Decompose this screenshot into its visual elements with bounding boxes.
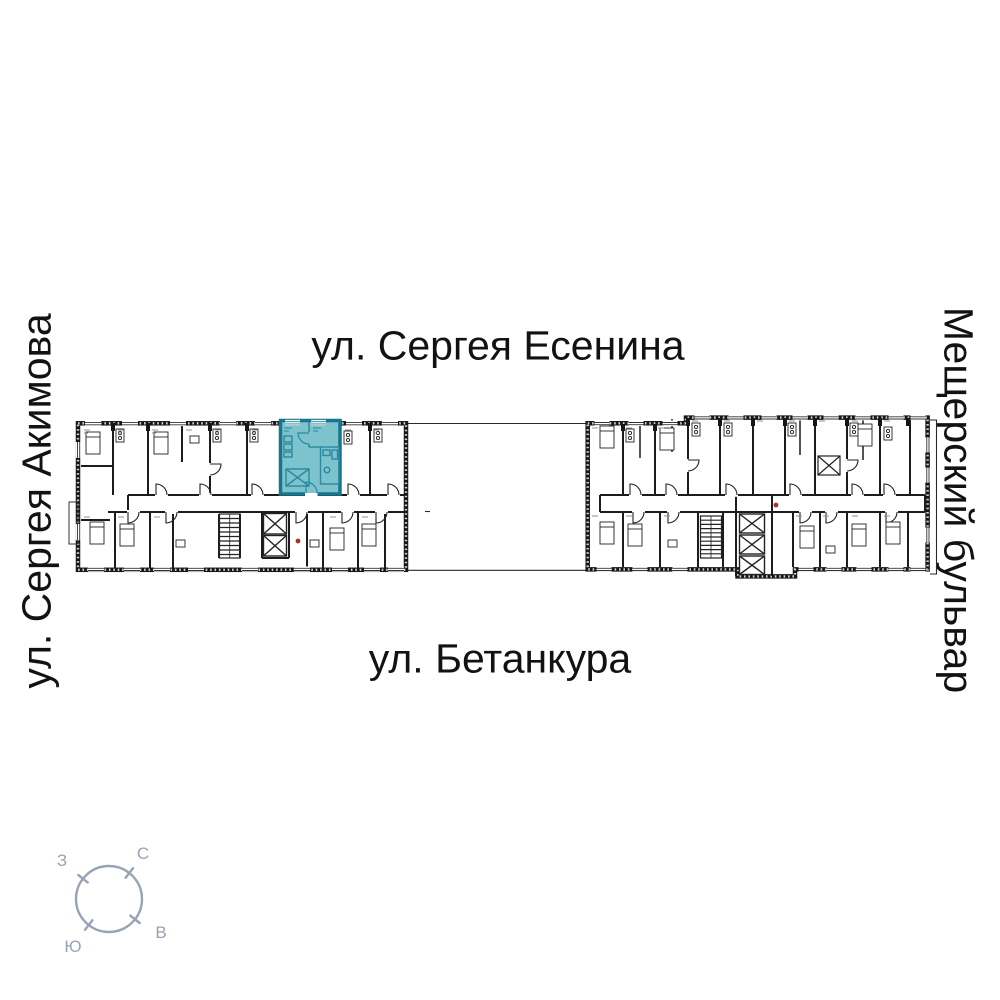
compass-rose: С З В Ю [40,835,185,965]
building-right-section [588,415,931,576]
page: ул. Сергея Есенина ул. Бетанкура ул. Сер… [0,0,1000,1000]
fire-safety-mark [296,539,301,544]
compass-west-label: З [57,851,67,871]
fire-safety-mark [774,503,779,508]
building-left-section [69,421,406,572]
selected-apartment[interactable] [281,420,341,497]
compass-north-label: С [137,844,149,864]
compass-east-label: В [155,923,166,943]
compass-south-label: Ю [64,937,81,957]
